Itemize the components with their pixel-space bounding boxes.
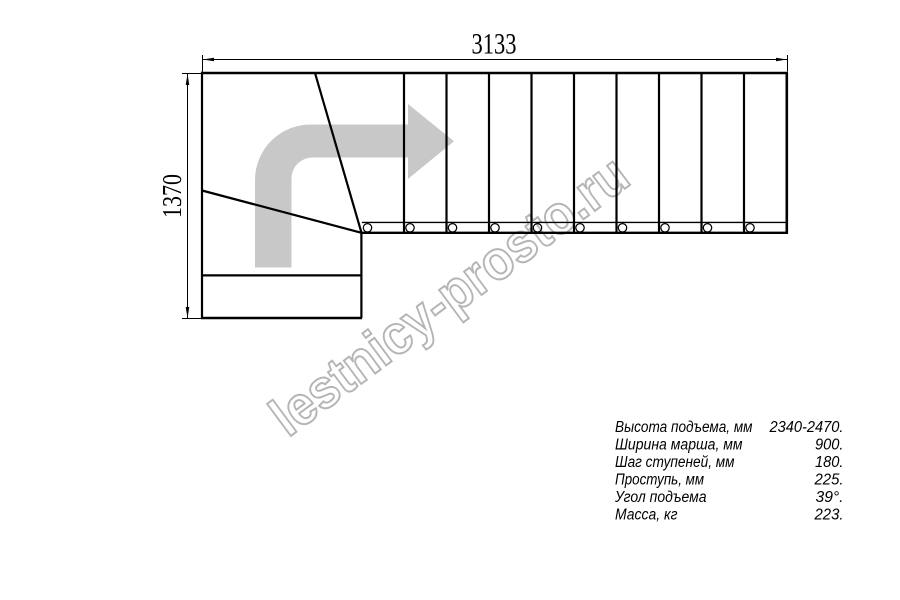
svg-text:2340-2470.: 2340-2470. — [769, 419, 844, 436]
svg-text:223.: 223. — [814, 507, 844, 524]
svg-text:225.: 225. — [814, 472, 844, 489]
svg-text:Шаг ступеней, мм: Шаг ступеней, мм — [615, 454, 735, 471]
svg-text:Масса, кг: Масса, кг — [615, 507, 678, 524]
svg-text:1370: 1370 — [156, 174, 187, 218]
svg-text:Ширина марша, мм: Ширина марша, мм — [615, 437, 743, 454]
svg-text:3133: 3133 — [472, 28, 517, 61]
svg-text:Высота подъема, мм: Высота подъема, мм — [615, 419, 753, 436]
svg-text:Угол подъема: Угол подъема — [614, 489, 707, 506]
svg-text:39°.: 39°. — [816, 489, 844, 506]
svg-text:Проступь, мм: Проступь, мм — [615, 472, 704, 489]
svg-text:180.: 180. — [815, 454, 844, 471]
svg-text:900.: 900. — [815, 437, 844, 454]
